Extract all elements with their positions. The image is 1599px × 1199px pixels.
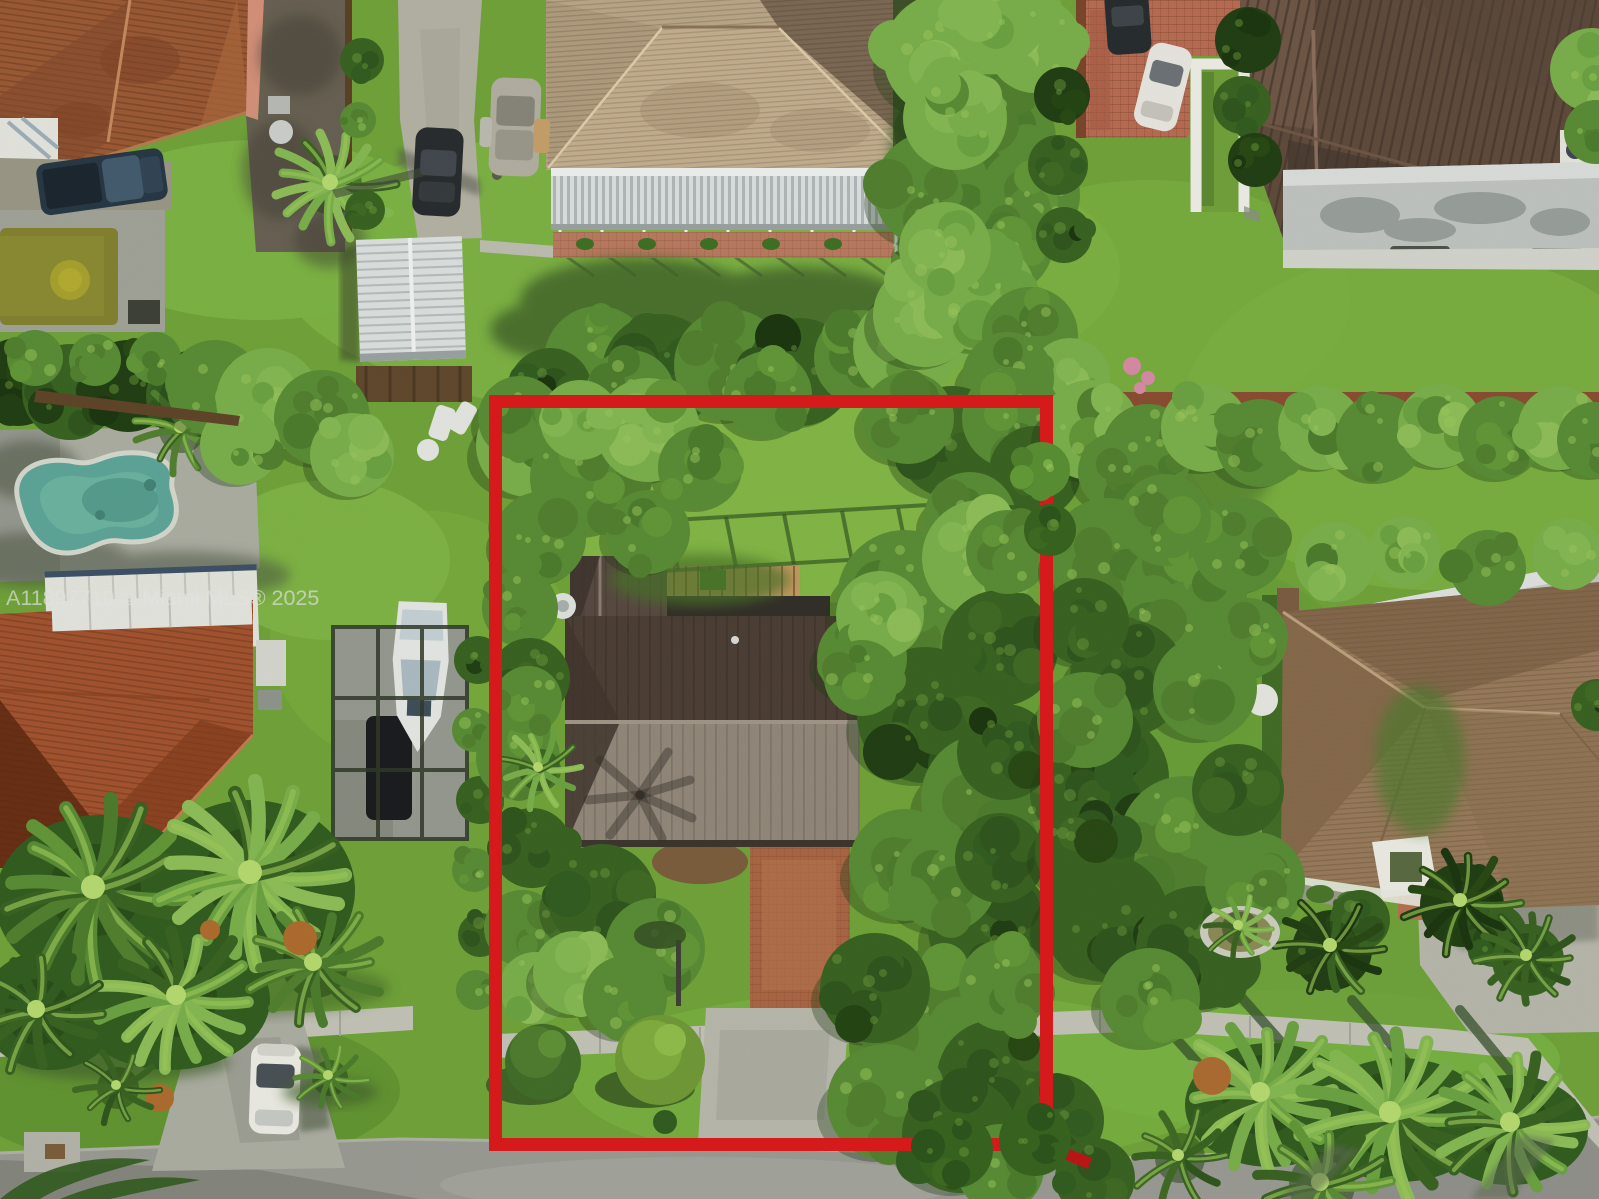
svg-text:A11897710 © Miami MLS® 2025: A11897710 © Miami MLS® 2025 xyxy=(6,586,319,610)
